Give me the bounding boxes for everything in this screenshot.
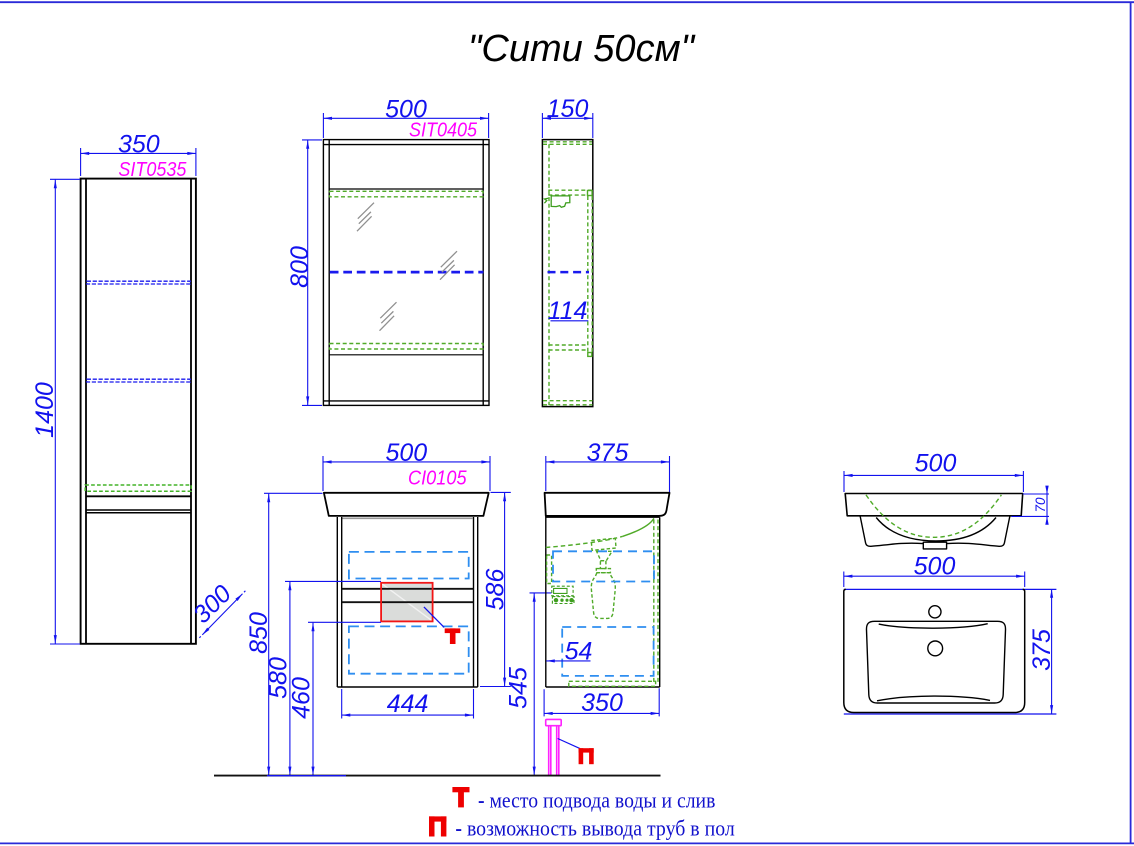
svg-text:70: 70 <box>1033 497 1048 513</box>
svg-text:CI0105: CI0105 <box>408 467 467 489</box>
svg-text:460: 460 <box>288 677 316 719</box>
svg-text:500: 500 <box>915 450 957 478</box>
svg-text:"Сити 50см": "Сити 50см" <box>468 28 696 70</box>
svg-text:500: 500 <box>385 439 427 467</box>
svg-text:- возможность вывода труб в по: - возможность вывода труб в пол <box>455 816 734 841</box>
svg-text:350: 350 <box>118 131 160 159</box>
svg-text:350: 350 <box>581 689 623 717</box>
svg-text:- место подвода воды и слив: - место подвода воды и слив <box>478 788 715 813</box>
svg-text:586: 586 <box>482 569 510 611</box>
svg-text:444: 444 <box>387 690 429 718</box>
svg-text:SIT0405: SIT0405 <box>409 120 478 142</box>
svg-text:545: 545 <box>505 667 533 709</box>
svg-text:800: 800 <box>286 246 314 288</box>
svg-text:375: 375 <box>587 439 629 467</box>
